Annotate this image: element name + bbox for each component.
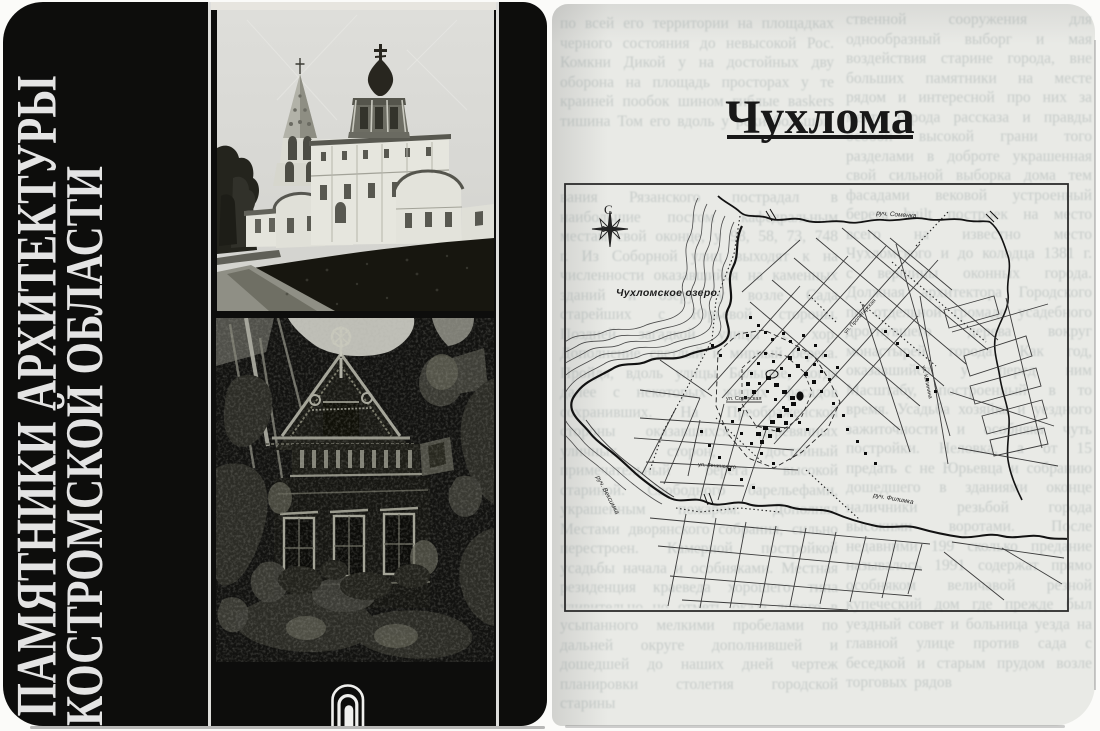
svg-text:С: С [604, 202, 613, 217]
svg-text:Чухломское озеро: Чухломское озеро [616, 287, 718, 299]
svg-text:руч. Соменка: руч. Соменка [875, 210, 917, 220]
svg-text:ул. Пролетарская: ул. Пролетарская [843, 298, 877, 335]
svg-text:руч. Филимка: руч. Филимка [872, 492, 915, 506]
svg-text:руч. Вексимка: руч. Вексимка [594, 474, 621, 516]
svg-text:ул. Советская: ул. Советская [726, 396, 761, 402]
svg-text:ул. Ленинского: ул. Ленинского [698, 462, 736, 471]
